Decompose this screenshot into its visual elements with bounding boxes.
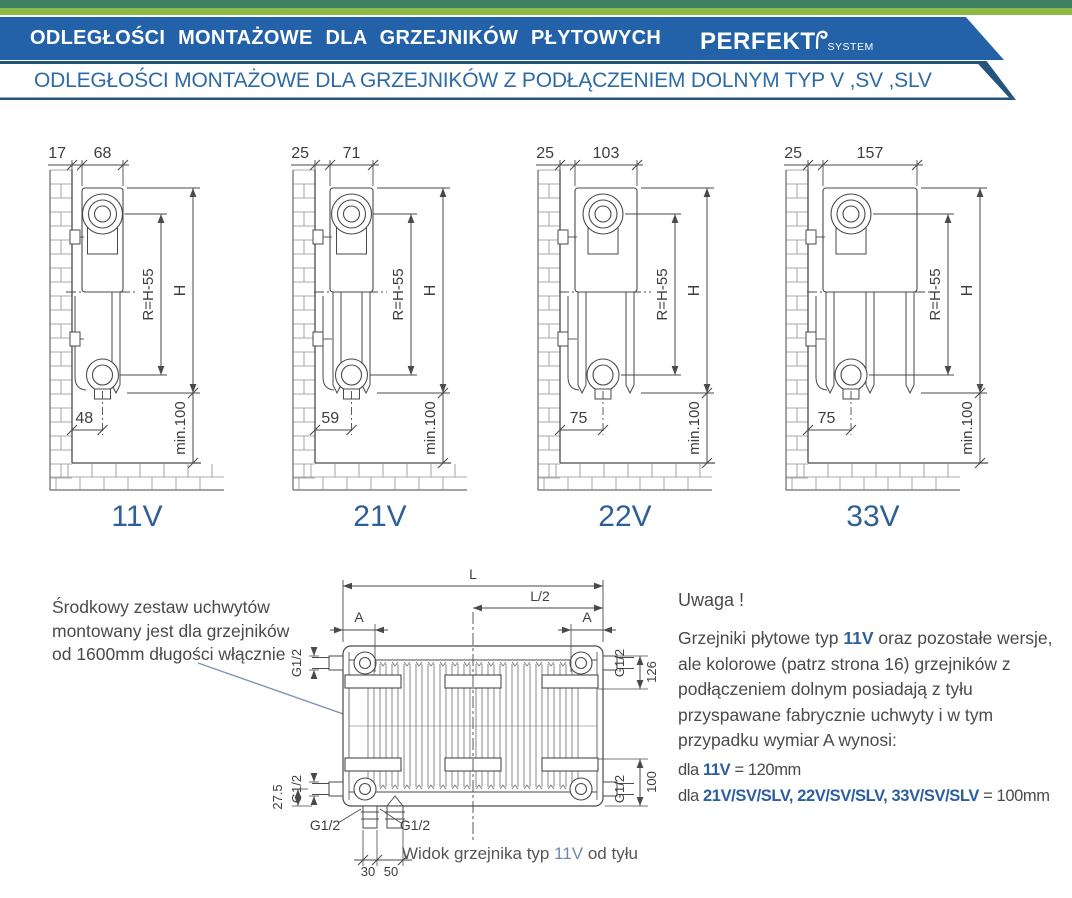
dim-height: HR=H-55min.100 [370, 188, 451, 468]
dim-r: R=H-55 [140, 268, 157, 320]
dim-min: min.100 [959, 401, 976, 454]
note-rule-2: dla 21V/SV/SLV, 22V/SV/SLV, 33V/SV/SLV =… [678, 787, 1072, 806]
rear-caption-type: 11V [554, 844, 583, 863]
dim-g12-bottom-right: G1/2 [400, 817, 431, 833]
diagram-side-21v: 2571HR=H-55min.10059 [255, 130, 505, 545]
dim-depth: 103 [593, 145, 620, 162]
rear-caption-post: od tyłu [583, 844, 638, 863]
dim-bottom-offset: 48 [75, 410, 93, 427]
diagram-side-11v: 1768HR=H-55min.10048 [12, 130, 262, 545]
brand-hook-icon [814, 27, 829, 51]
page-title: ODLEGŁOŚCI MONTAŻOWE DLA GRZEJNIKÓW PŁYT… [0, 27, 661, 50]
dim-r: R=H-55 [654, 268, 671, 320]
note-rule-1: dla 11V = 120mm [678, 761, 1072, 780]
dim-bottom-offset: 59 [321, 410, 339, 427]
subheader: ODLEGŁOŚCI MONTAŻOWE DLA GRZEJNIKÓW Z PO… [0, 61, 1016, 100]
note-rule-2-val: = 100mm [979, 787, 1050, 805]
wall-bricks [293, 170, 467, 490]
left-note-line: montowany jest dla grzejników [52, 620, 289, 644]
radiator-body [558, 188, 651, 399]
dim-wall-offset: 25 [784, 145, 802, 162]
left-note: Środkowy zestaw uchwytów montowany jest … [52, 596, 289, 667]
dim-wall-offset: 25 [536, 145, 554, 162]
dim-wall-offset: 17 [48, 145, 66, 162]
radiator-body [806, 188, 931, 399]
subheader-inner: ODLEGŁOŚCI MONTAŻOWE DLA GRZEJNIKÓW Z PO… [0, 64, 1009, 98]
dim-h: H [686, 285, 703, 297]
radiator-body [313, 188, 387, 399]
dim-A-right: A [582, 609, 592, 625]
dim-h: H [422, 285, 439, 297]
dim-min: min.100 [686, 401, 703, 454]
dim-min: min.100 [422, 401, 439, 454]
dim-top: 1768 [48, 145, 129, 186]
wall-bricks [50, 170, 224, 490]
left-note-line: Środkowy zestaw uchwytów [52, 596, 289, 620]
dim-h: H [959, 285, 976, 297]
type-label-22v: 22V [500, 500, 750, 534]
dim-A-left: A [354, 609, 364, 625]
dim-g12-bottom-left: G1/2 [310, 817, 341, 833]
dim-27-5: 27.5 [270, 784, 285, 809]
dim-50: 50 [384, 864, 398, 879]
note-body: Grzejniki płytowe typ 11V oraz pozostałe… [678, 626, 1072, 754]
note-body-pre: Grzejniki płytowe typ [678, 628, 843, 648]
type-label-11v: 11V [12, 500, 262, 534]
dim-r: R=H-55 [390, 268, 407, 320]
dim-bottom-offset: 75 [818, 410, 836, 427]
type-label-21v: 21V [255, 500, 505, 534]
note-rule-1-pre: dla [678, 761, 703, 779]
header-strip-dark [0, 0, 1072, 8]
type-label-33v: 33V [748, 500, 998, 534]
dim-top: 25103 [536, 145, 643, 186]
dim-bottom-offset: 75 [570, 410, 588, 427]
note-rule-2-type: 21V/SV/SLV, 22V/SV/SLV, 33V/SV/SLV [703, 787, 979, 805]
rear-caption: Widok grzejnika typ 11V od tyłu [402, 844, 638, 864]
note-title: Uwaga ! [678, 590, 1072, 611]
dim-h: H [172, 285, 189, 297]
brand-name: PERFEKT [700, 31, 816, 53]
header-banner: ODLEGŁOŚCI MONTAŻOWE DLA GRZEJNIKÓW PŁYT… [0, 17, 1004, 60]
note-body-type: 11V [843, 628, 873, 648]
brand-logo: PERFEKT SYSTEM [700, 27, 874, 53]
dim-depth: 68 [94, 145, 112, 162]
diagram-side-33v: 25157HR=H-55min.10075 [748, 130, 998, 545]
dim-min: min.100 [172, 401, 189, 454]
dim-g12-left: G1/2 [289, 649, 304, 677]
diagram-rear-view: LL/2AAG1/2G1/2G1/2126G1/210027.5G1/2G1/2… [268, 556, 688, 886]
dim-depth: 157 [857, 145, 884, 162]
dim-top: 2571 [291, 145, 379, 186]
rear-caption-pre: Widok grzejnika typ [402, 844, 554, 863]
dim-100: 100 [644, 771, 659, 793]
dim-depth: 71 [343, 145, 361, 162]
page: ODLEGŁOŚCI MONTAŻOWE DLA GRZEJNIKÓW PŁYT… [0, 0, 1072, 898]
note-rule-2-pre: dla [678, 787, 703, 805]
note-block: Uwaga ! Grzejniki płytowe typ 11V oraz p… [678, 590, 1072, 806]
subheader-title: ODLEGŁOŚCI MONTAŻOWE DLA GRZEJNIKÓW Z PO… [0, 69, 932, 93]
note-rule-1-val: = 120mm [730, 761, 801, 779]
dim-wall-offset: 25 [291, 145, 309, 162]
diagram-side-22v: 25103HR=H-55min.10075 [500, 130, 750, 545]
dim-top: 25157 [784, 145, 923, 186]
dim-30: 30 [361, 864, 375, 879]
dim-g12-right-bottom: G1/2 [612, 775, 627, 803]
dim-L: L [469, 566, 477, 582]
brand-suffix: SYSTEM [828, 41, 874, 53]
dim-L2: L/2 [530, 588, 550, 604]
note-rule-1-type: 11V [703, 761, 730, 779]
radiator-body [66, 188, 137, 399]
dim-r: R=H-55 [927, 268, 944, 320]
dim-g12-right-top: G1/2 [612, 649, 627, 677]
dim-126: 126 [644, 661, 659, 683]
left-note-line: od 1600mm długości włącznie [52, 643, 289, 667]
header-strip-light [0, 8, 1072, 15]
dim-height: HR=H-55min.100 [121, 188, 201, 468]
